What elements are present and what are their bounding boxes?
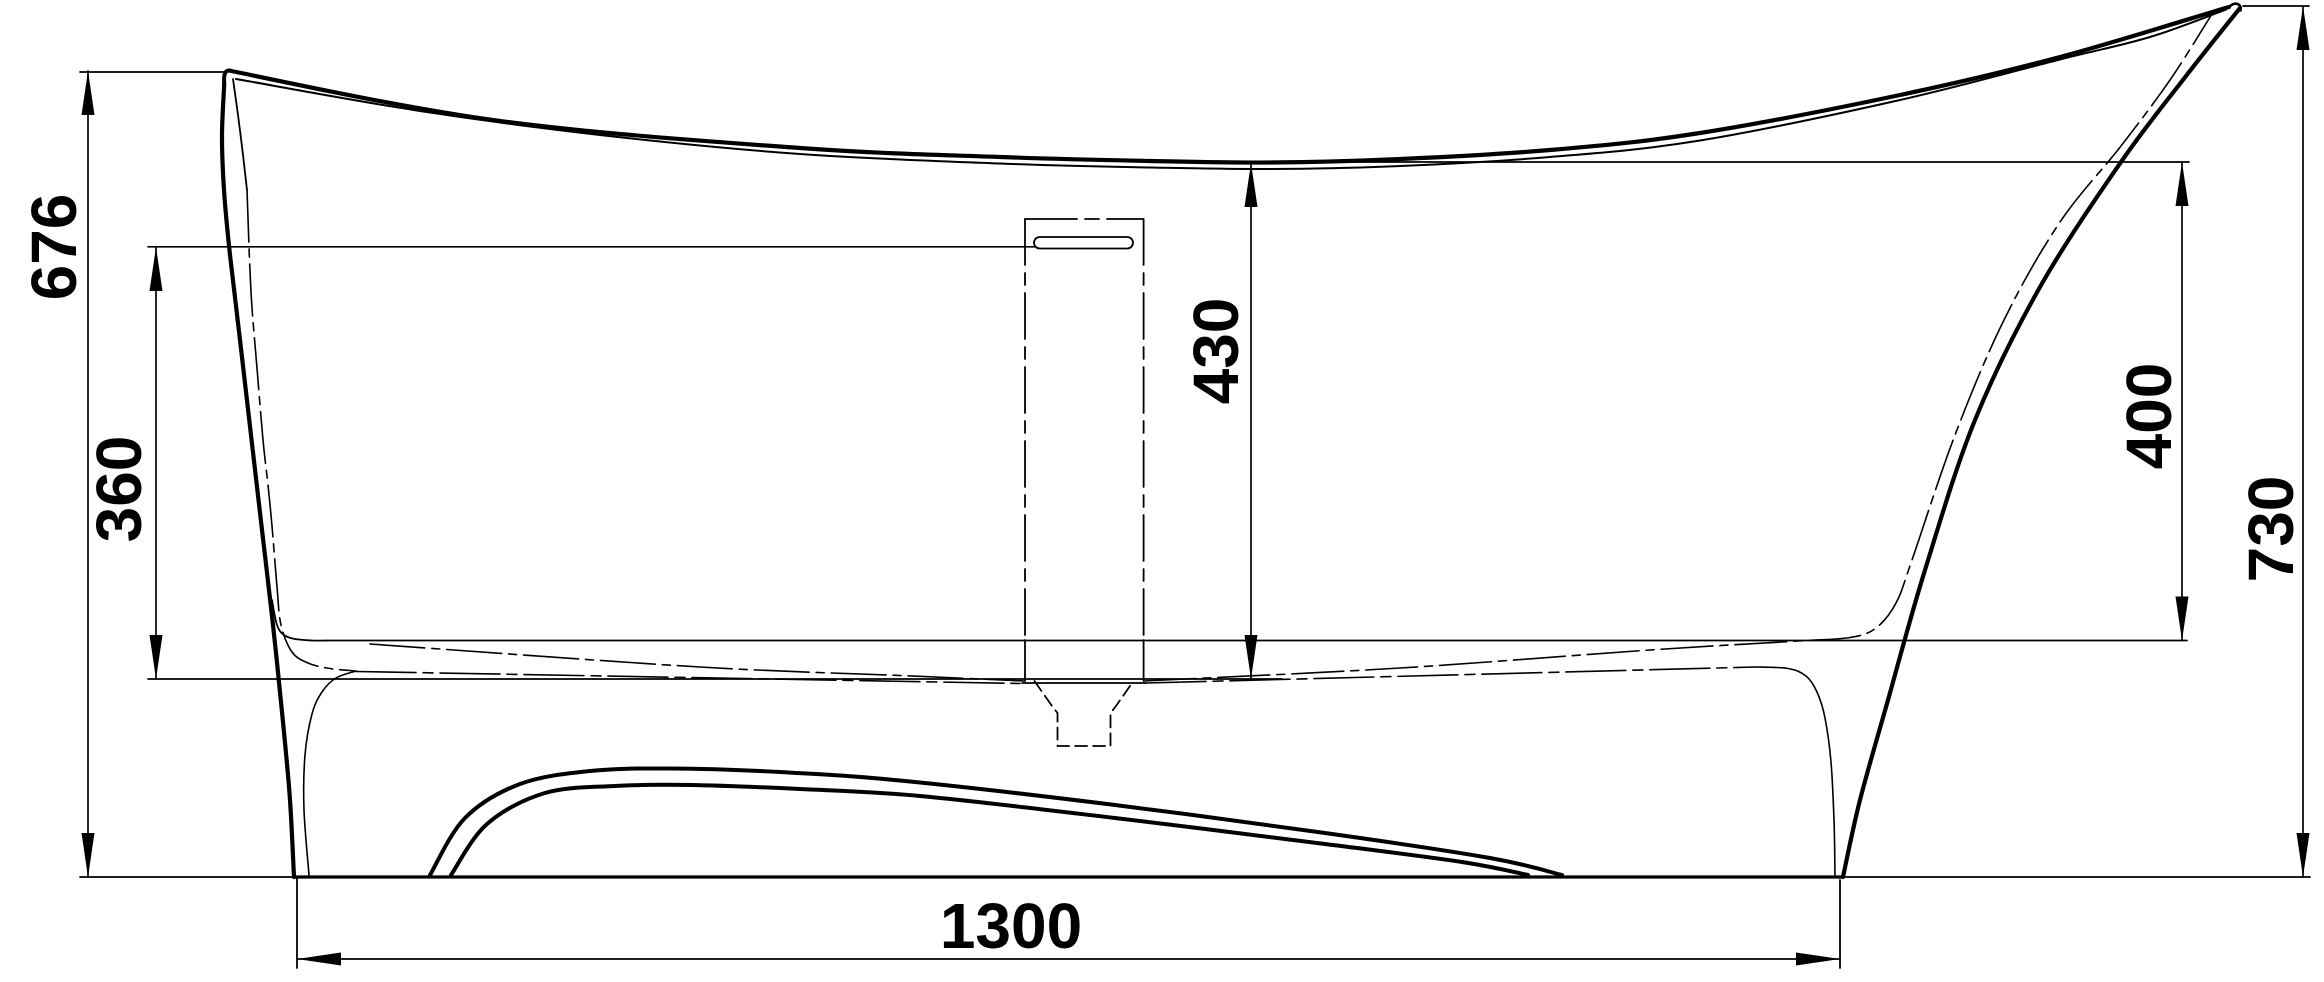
svg-text:676: 676 (18, 194, 90, 301)
svg-text:1300: 1300 (940, 890, 1082, 962)
svg-text:730: 730 (2235, 476, 2307, 583)
svg-text:430: 430 (1180, 298, 1252, 405)
svg-text:400: 400 (2113, 363, 2185, 470)
svg-text:360: 360 (83, 436, 155, 543)
